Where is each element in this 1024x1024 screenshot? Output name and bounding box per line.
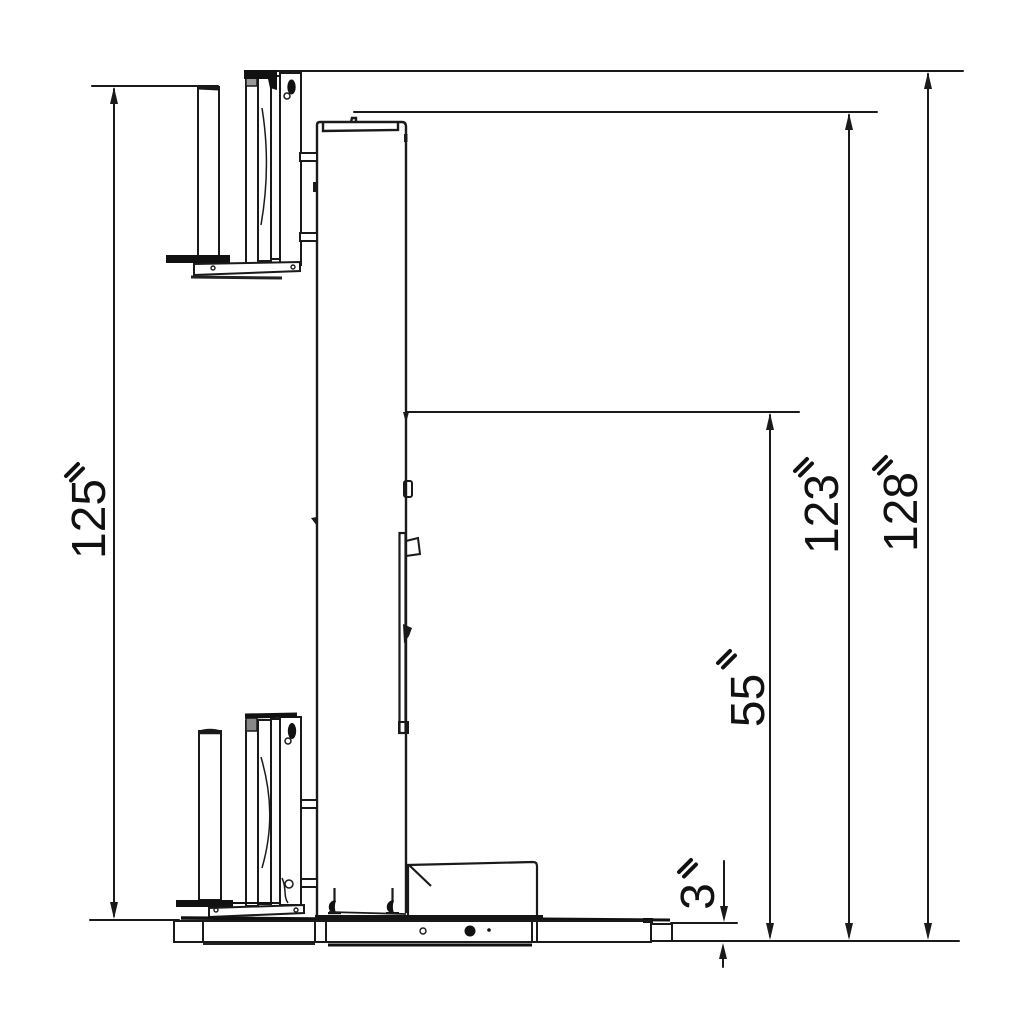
svg-text:55: 55 — [722, 674, 775, 728]
svg-text:123: 123 — [796, 474, 849, 554]
svg-text:128: 128 — [875, 472, 928, 552]
svg-text:125: 125 — [63, 479, 116, 559]
svg-text:3: 3 — [672, 883, 725, 910]
